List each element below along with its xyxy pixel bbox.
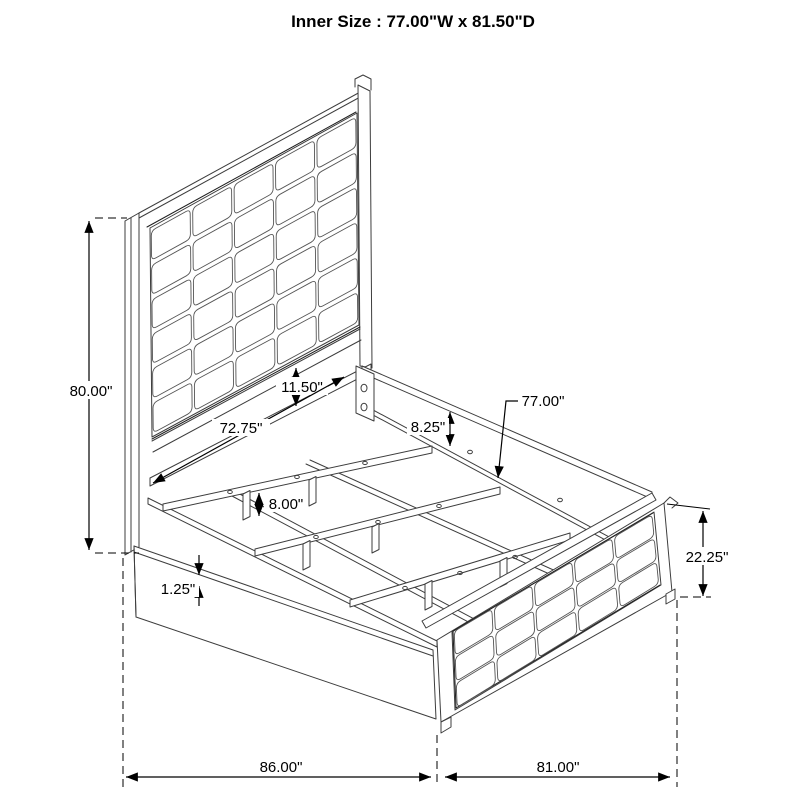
dim-label-rail-lip: 1.25" bbox=[161, 581, 196, 598]
dim-support-leg-height: 8.00" bbox=[259, 493, 308, 516]
bed-dimension-diagram-page: Inner Size : 77.00"W x 81.50"D bbox=[0, 0, 800, 800]
bed-dimension-diagram: Inner Size : 77.00"W x 81.50"D bbox=[0, 0, 800, 800]
page-title: Inner Size : 77.00"W x 81.50"D bbox=[291, 12, 535, 31]
dim-label-slat-length: 77.00" bbox=[522, 393, 565, 410]
dim-label-headboard-height: 80.00" bbox=[70, 383, 113, 400]
support-leg bbox=[372, 524, 379, 554]
dim-label-leg-height: 8.00" bbox=[269, 496, 304, 513]
dim-label-overall-depth: 86.00" bbox=[260, 759, 303, 776]
headboard bbox=[125, 75, 372, 555]
dim-label-footboard-height: 22.25" bbox=[686, 549, 729, 566]
support-leg bbox=[425, 581, 432, 611]
footboard-top-face bbox=[664, 497, 678, 508]
dim-label-rail-height: 8.25" bbox=[411, 419, 446, 436]
footboard-outer bbox=[437, 503, 672, 722]
headboard-mounting-bracket bbox=[356, 366, 374, 421]
support-leg bbox=[309, 477, 316, 507]
dim-label-panel-gap: 11.50" bbox=[281, 379, 323, 396]
bed-frame bbox=[134, 364, 656, 719]
support-leg bbox=[243, 491, 250, 521]
headboard-left-post bbox=[125, 213, 139, 555]
headboard-right-post bbox=[358, 85, 372, 368]
dim-label-overall-width: 81.00" bbox=[537, 759, 580, 776]
bed-drawing bbox=[125, 75, 678, 733]
dim-side-rail-height: 8.25" bbox=[407, 412, 450, 446]
footboard bbox=[437, 497, 678, 733]
support-leg bbox=[303, 541, 310, 571]
dim-footboard-height: 22.25" bbox=[667, 504, 736, 597]
dim-label-inner-rail: 72.75" bbox=[220, 420, 263, 437]
